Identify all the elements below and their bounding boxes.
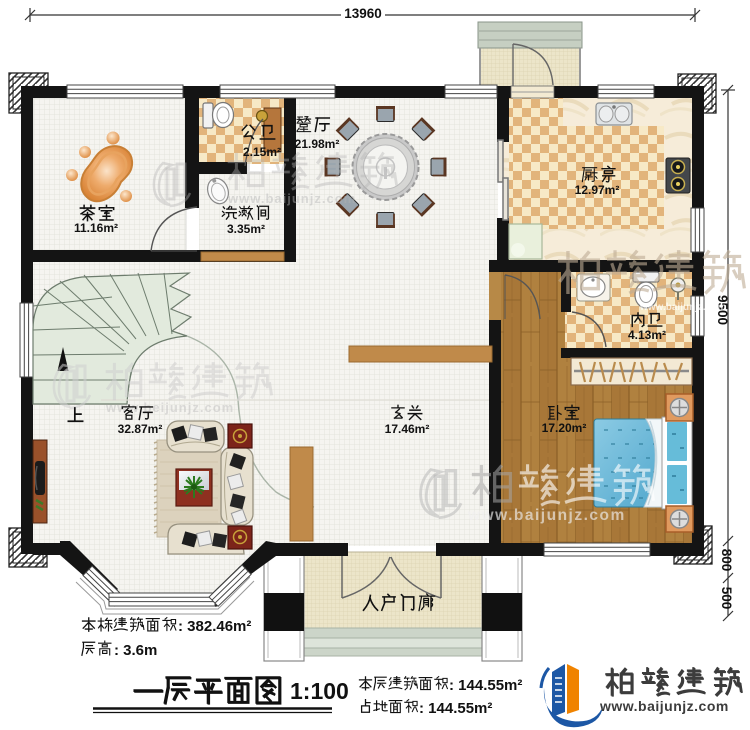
- svg-text:13960: 13960: [344, 6, 382, 21]
- svg-text:12.97m²: 12.97m²: [575, 183, 620, 197]
- svg-text:11.16m²: 11.16m²: [74, 221, 118, 235]
- svg-text:4.13m²: 4.13m²: [628, 328, 666, 342]
- svg-text:: 144.55m²: : 144.55m²: [449, 677, 522, 694]
- svg-text:800: 800: [719, 549, 734, 572]
- svg-text:32.87m²: 32.87m²: [118, 422, 163, 436]
- svg-text:: 144.55m²: : 144.55m²: [419, 700, 492, 717]
- svg-text:www.baijunjz.com: www.baijunjz.com: [467, 507, 626, 524]
- svg-text:: 382.46m²: : 382.46m²: [178, 618, 251, 635]
- svg-text:17.46m²: 17.46m²: [385, 422, 430, 436]
- svg-text:500: 500: [719, 587, 734, 610]
- svg-text:: 3.6m: : 3.6m: [114, 642, 157, 659]
- svg-text:www.baijunjz.com: www.baijunjz.com: [599, 698, 729, 714]
- svg-text:www.baijunjz.com: www.baijunjz.com: [639, 302, 726, 313]
- svg-text:17.20m²: 17.20m²: [542, 421, 587, 435]
- svg-text:1:100: 1:100: [290, 678, 349, 704]
- svg-text:2.15m²: 2.15m²: [243, 145, 281, 159]
- svg-text:3.35m²: 3.35m²: [227, 222, 265, 236]
- svg-text:www.baijunjz.com: www.baijunjz.com: [227, 191, 356, 206]
- svg-text:21.98m²: 21.98m²: [295, 137, 340, 151]
